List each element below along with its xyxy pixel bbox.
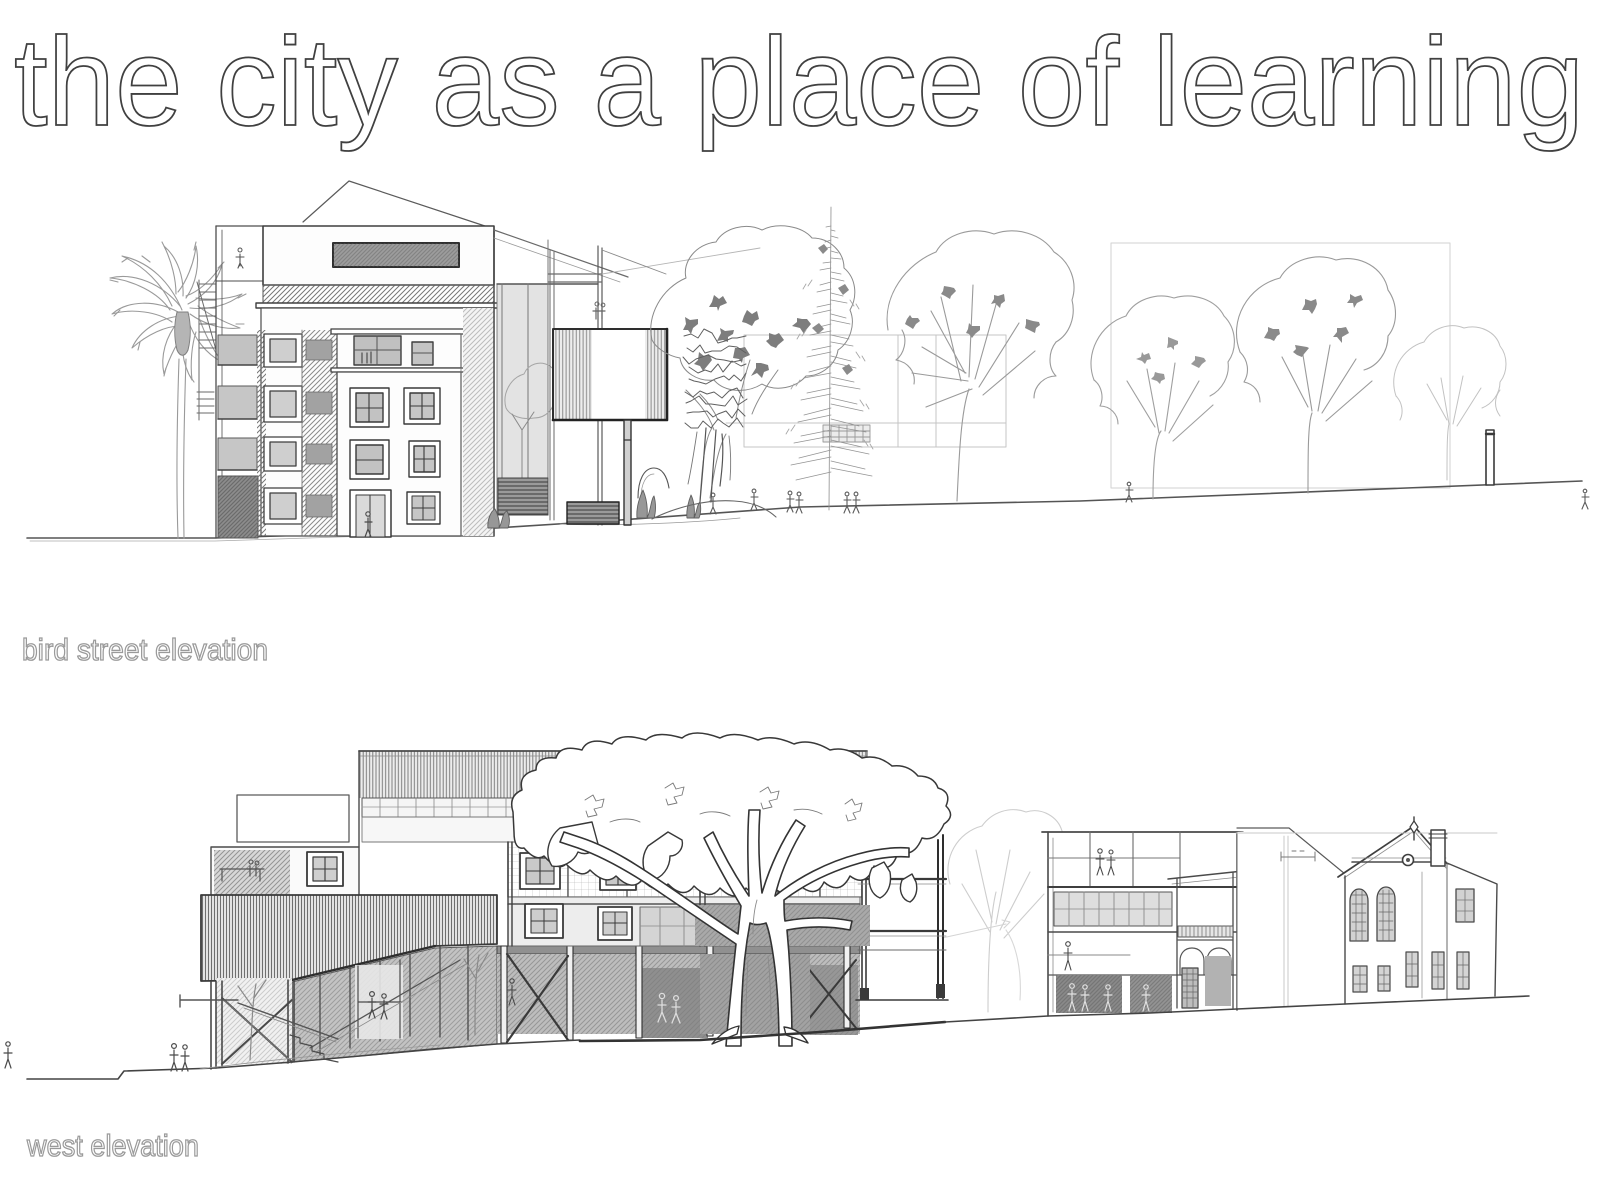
svg-text:bird street elevation: bird street elevation <box>22 632 268 667</box>
svg-text:the city as a place of learnin: the city as a place of learning <box>14 13 1584 152</box>
svg-text:west elevation: west elevation <box>26 1128 199 1163</box>
